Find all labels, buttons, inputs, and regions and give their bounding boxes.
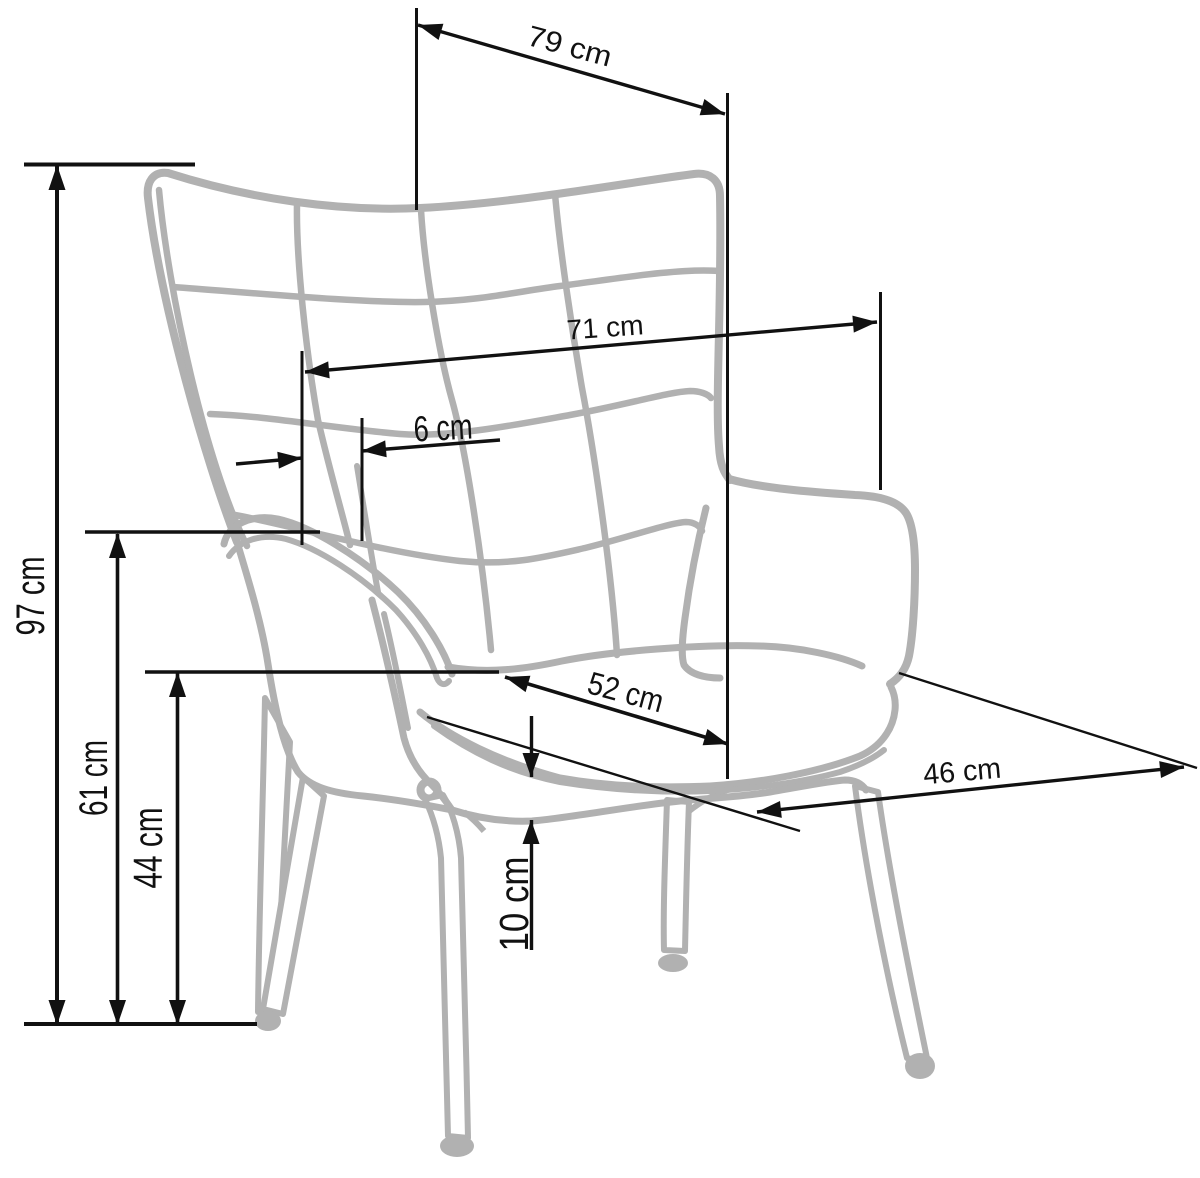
svg-text:97 cm: 97 cm	[9, 557, 53, 636]
svg-text:71 cm: 71 cm	[566, 309, 645, 345]
svg-text:61 cm: 61 cm	[72, 740, 116, 816]
svg-text:6 cm: 6 cm	[412, 405, 473, 449]
svg-text:46 cm: 46 cm	[922, 753, 1002, 792]
svg-text:10 cm: 10 cm	[491, 857, 537, 952]
svg-text:44 cm: 44 cm	[125, 808, 171, 889]
